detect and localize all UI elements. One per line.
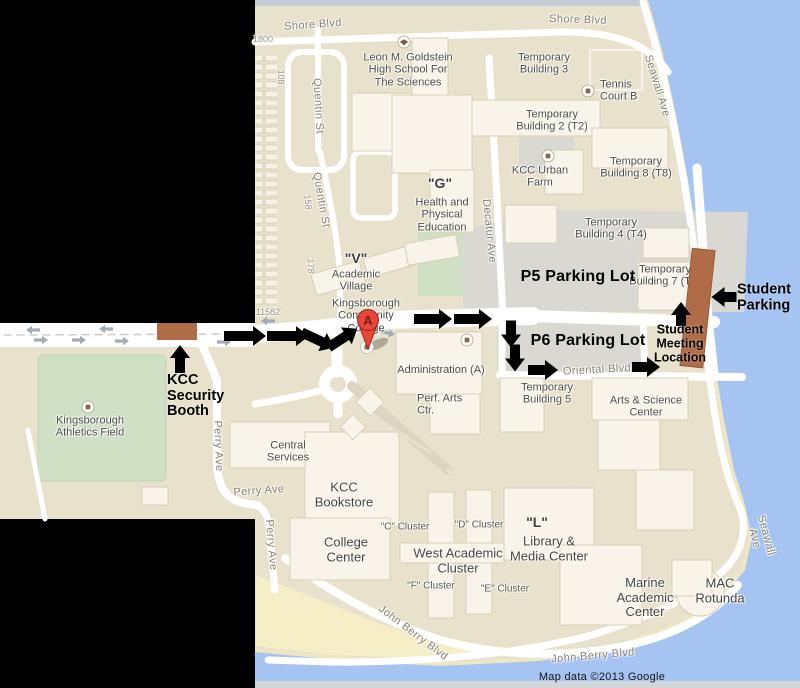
- route-arrow: [501, 321, 521, 348]
- route-arrows-layer: [170, 287, 737, 380]
- map-pin-letter: A: [363, 313, 373, 328]
- annotation-overlay: A: [0, 0, 800, 688]
- security-booth-highlight: [157, 323, 197, 340]
- route-arrow: [528, 360, 558, 380]
- route-arrow: [170, 345, 190, 373]
- location-pin[interactable]: A: [358, 310, 390, 354]
- campus-map-canvas[interactable]: Shore BlvdShore BlvdSeawall AveSeawall A…: [0, 0, 800, 688]
- route-arrow: [414, 309, 452, 329]
- route-arrow: [224, 326, 266, 346]
- route-arrow: [632, 357, 660, 377]
- route-arrow: [454, 309, 492, 329]
- route-arrow: [712, 287, 737, 307]
- route-arrow: [505, 345, 525, 372]
